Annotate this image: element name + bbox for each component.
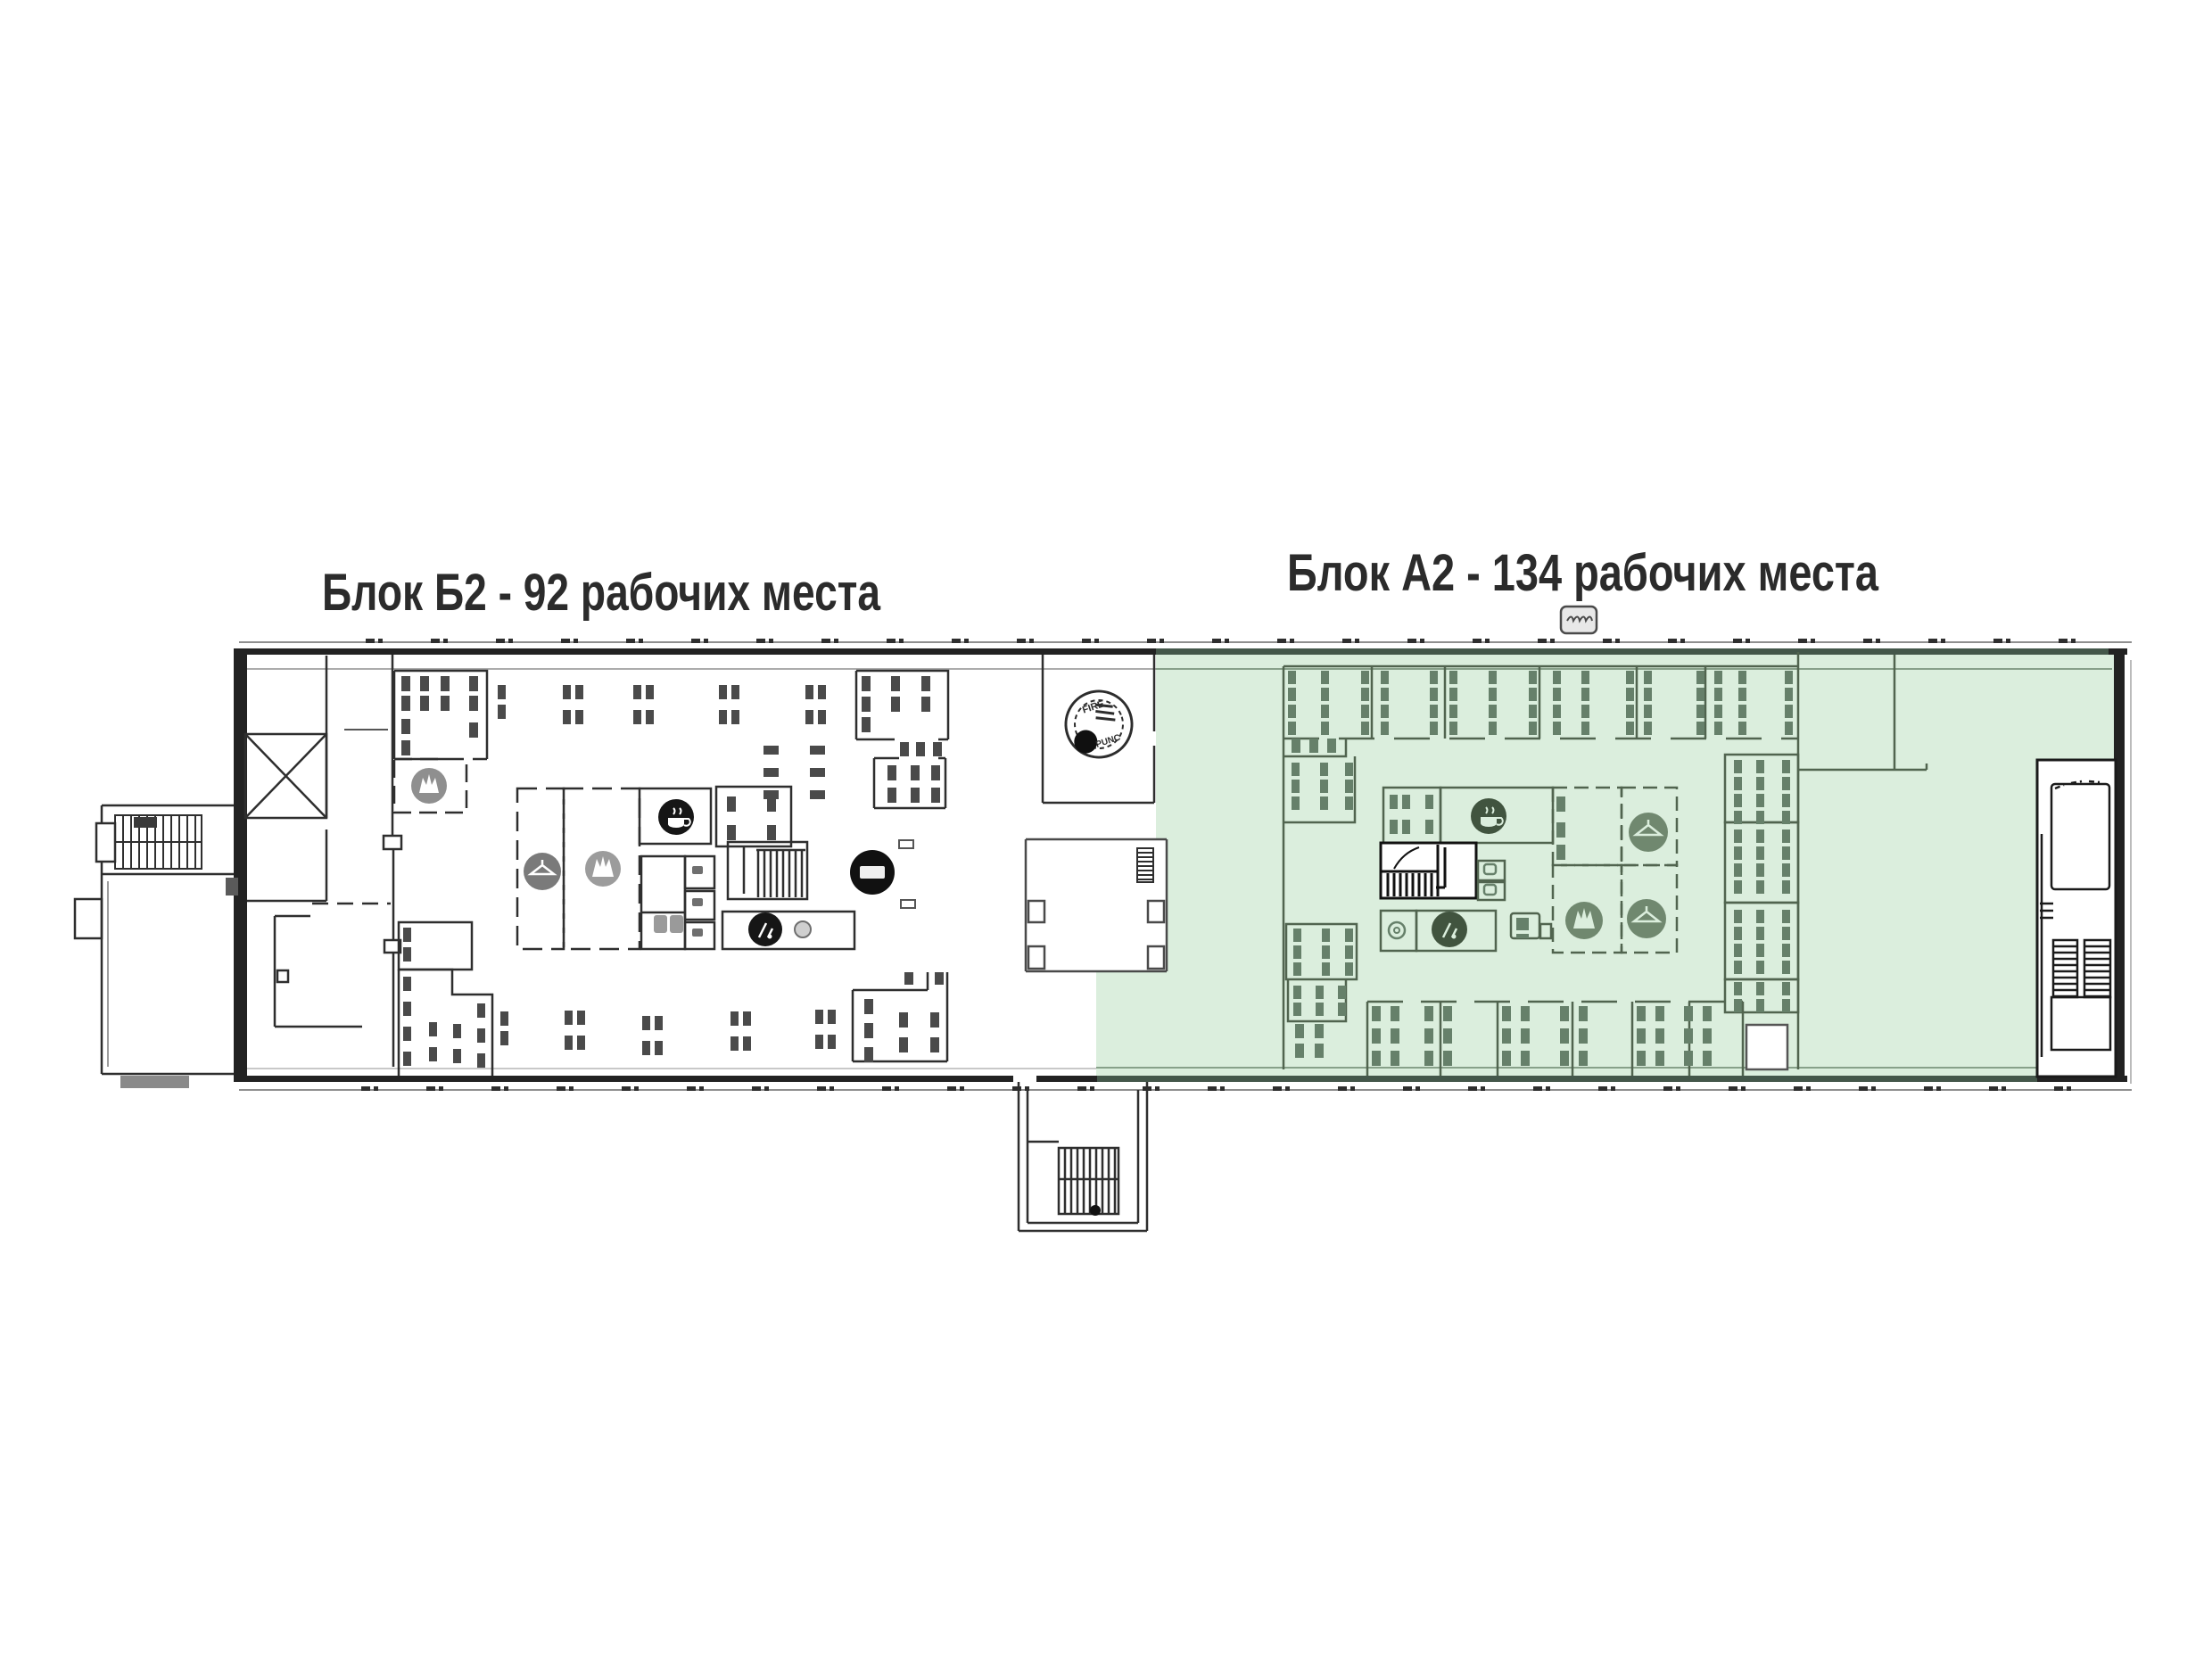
svg-text:Блок Б2 - 92 рабочих места: Блок Б2 - 92 рабочих места <box>322 564 881 622</box>
svg-text:Блок А2 - 134 рабочих места: Блок А2 - 134 рабочих места <box>1287 544 1879 602</box>
